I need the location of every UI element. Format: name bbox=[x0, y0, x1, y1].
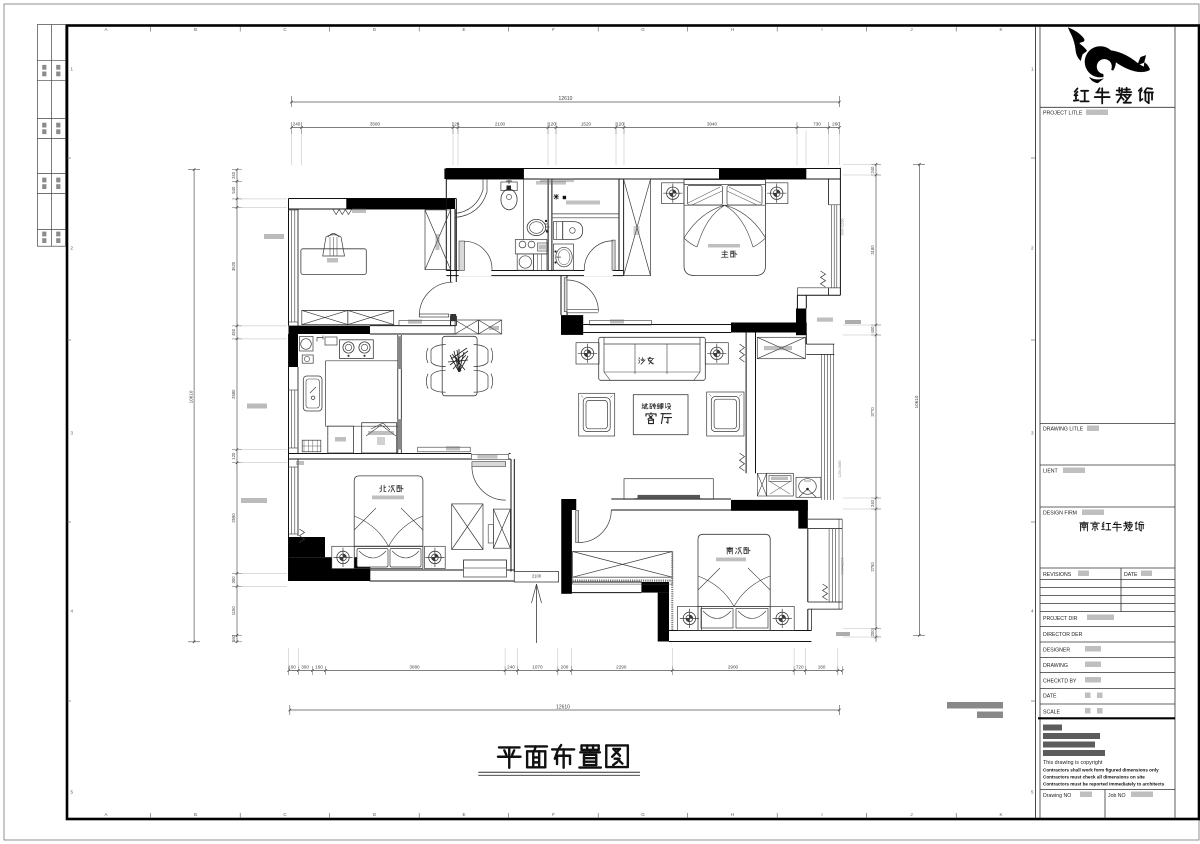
svg-text:900=2296: 900=2296 bbox=[841, 558, 845, 575]
svg-text:B: B bbox=[194, 812, 197, 817]
svg-text:DIRECTOR DER: DIRECTOR DER bbox=[1043, 632, 1083, 638]
svg-text:540: 540 bbox=[231, 186, 236, 194]
svg-text:DRAWING: DRAWING bbox=[1043, 663, 1068, 669]
svg-text:200: 200 bbox=[870, 629, 875, 637]
svg-text:450: 450 bbox=[231, 328, 236, 336]
svg-text:DATE: DATE bbox=[1043, 694, 1057, 700]
svg-text:I: I bbox=[821, 812, 822, 817]
svg-text:REVISIONS: REVISIONS bbox=[1043, 572, 1072, 578]
svg-text:H: H bbox=[731, 27, 734, 32]
svg-text:240: 240 bbox=[507, 665, 515, 670]
svg-text:400: 400 bbox=[870, 326, 875, 334]
svg-text:10610: 10610 bbox=[189, 390, 194, 403]
svg-text:I: I bbox=[821, 27, 822, 32]
svg-text:900=2296: 900=2296 bbox=[841, 219, 845, 236]
svg-text:3940: 3940 bbox=[707, 122, 718, 127]
svg-text:2100: 2100 bbox=[532, 574, 542, 579]
svg-text:260: 260 bbox=[832, 122, 840, 127]
svg-text:10610: 10610 bbox=[914, 395, 919, 408]
svg-text:F: F bbox=[552, 812, 555, 817]
svg-text:720: 720 bbox=[796, 665, 804, 670]
svg-text:2100: 2100 bbox=[495, 122, 506, 127]
svg-text:120: 120 bbox=[231, 452, 236, 460]
svg-text:1070: 1070 bbox=[532, 665, 543, 670]
svg-text:3580: 3580 bbox=[370, 122, 381, 127]
svg-text:This drawing is copyright: This drawing is copyright bbox=[1043, 760, 1103, 766]
svg-text:PROJECT DIR: PROJECT DIR bbox=[1043, 616, 1078, 622]
svg-text:E: E bbox=[462, 812, 465, 817]
svg-text:240: 240 bbox=[870, 499, 875, 507]
svg-text:Drawing NO: Drawing NO bbox=[1043, 793, 1071, 799]
svg-text:2590: 2590 bbox=[231, 513, 236, 523]
svg-text:A: A bbox=[104, 812, 107, 817]
svg-text:DATE: DATE bbox=[1124, 572, 1138, 578]
svg-text:G: G bbox=[641, 812, 645, 817]
svg-text:100: 100 bbox=[288, 665, 296, 670]
svg-text:1150: 1150 bbox=[231, 606, 236, 616]
svg-text:3080: 3080 bbox=[409, 665, 420, 670]
svg-text:240: 240 bbox=[231, 171, 236, 179]
svg-text:2750: 2750 bbox=[870, 562, 875, 572]
svg-text:K: K bbox=[999, 812, 1002, 817]
svg-text:G: G bbox=[641, 27, 645, 32]
svg-text:12610: 12610 bbox=[556, 704, 570, 710]
svg-text:H: H bbox=[731, 812, 734, 817]
svg-text:SCALE: SCALE bbox=[1043, 710, 1061, 716]
svg-text:730: 730 bbox=[813, 122, 821, 127]
svg-text:J: J bbox=[910, 27, 912, 32]
svg-text:3770: 3770 bbox=[870, 407, 875, 417]
svg-text:3180: 3180 bbox=[870, 245, 875, 255]
svg-text:120=1985: 120=1985 bbox=[838, 461, 842, 478]
svg-text:120: 120 bbox=[616, 122, 624, 127]
svg-text:Contractors must be reported i: Contractors must be reported immediately… bbox=[1043, 782, 1165, 787]
svg-text:LIENT: LIENT bbox=[1043, 469, 1059, 475]
svg-text:Job NO: Job NO bbox=[1108, 793, 1126, 799]
svg-text:DRAWING LITLE: DRAWING LITLE bbox=[1043, 427, 1084, 433]
svg-text:2290: 2290 bbox=[616, 665, 627, 670]
svg-text:PROJECT LITLE: PROJECT LITLE bbox=[1043, 111, 1083, 117]
svg-text:300: 300 bbox=[301, 665, 309, 670]
svg-text:DESIGNER: DESIGNER bbox=[1043, 648, 1070, 654]
svg-text:K: K bbox=[999, 27, 1002, 32]
svg-text:200: 200 bbox=[561, 665, 569, 670]
svg-text:180: 180 bbox=[818, 665, 826, 670]
svg-text:3620: 3620 bbox=[231, 261, 236, 271]
svg-text:E: E bbox=[462, 27, 465, 32]
svg-text:F: F bbox=[552, 27, 555, 32]
svg-text:2680: 2680 bbox=[231, 389, 236, 399]
svg-text:CHECKTD BY: CHECKTD BY bbox=[1043, 679, 1077, 685]
svg-text:300: 300 bbox=[231, 576, 236, 584]
svg-text:Contractors shall work form fi: Contractors shall work form figured dime… bbox=[1043, 768, 1159, 773]
svg-text:1520: 1520 bbox=[581, 122, 592, 127]
svg-text:J: J bbox=[910, 812, 912, 817]
svg-text:B: B bbox=[194, 27, 197, 32]
svg-text:Contractors must check all dim: Contractors must check all dimensions on… bbox=[1043, 775, 1145, 780]
svg-text:DESIGN FIRM: DESIGN FIRM bbox=[1043, 511, 1077, 517]
svg-text:240: 240 bbox=[870, 166, 875, 174]
svg-text:120: 120 bbox=[548, 122, 556, 127]
svg-text:A: A bbox=[104, 27, 107, 32]
svg-text:2900: 2900 bbox=[728, 665, 739, 670]
svg-text:240: 240 bbox=[293, 122, 301, 127]
svg-text:12610: 12610 bbox=[559, 96, 573, 102]
svg-text:160: 160 bbox=[315, 665, 323, 670]
